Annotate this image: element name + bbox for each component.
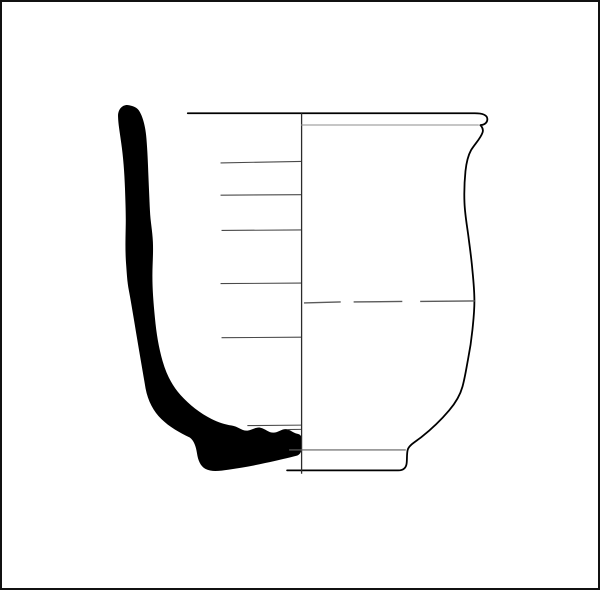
vessel-section-profile [118,105,301,471]
vessel-drawing [2,2,598,588]
interior-surface-lines [221,161,301,429]
body-equator-dashed-line [304,301,475,303]
figure-frame [0,0,600,590]
vessel-exterior-outline [188,113,488,470]
